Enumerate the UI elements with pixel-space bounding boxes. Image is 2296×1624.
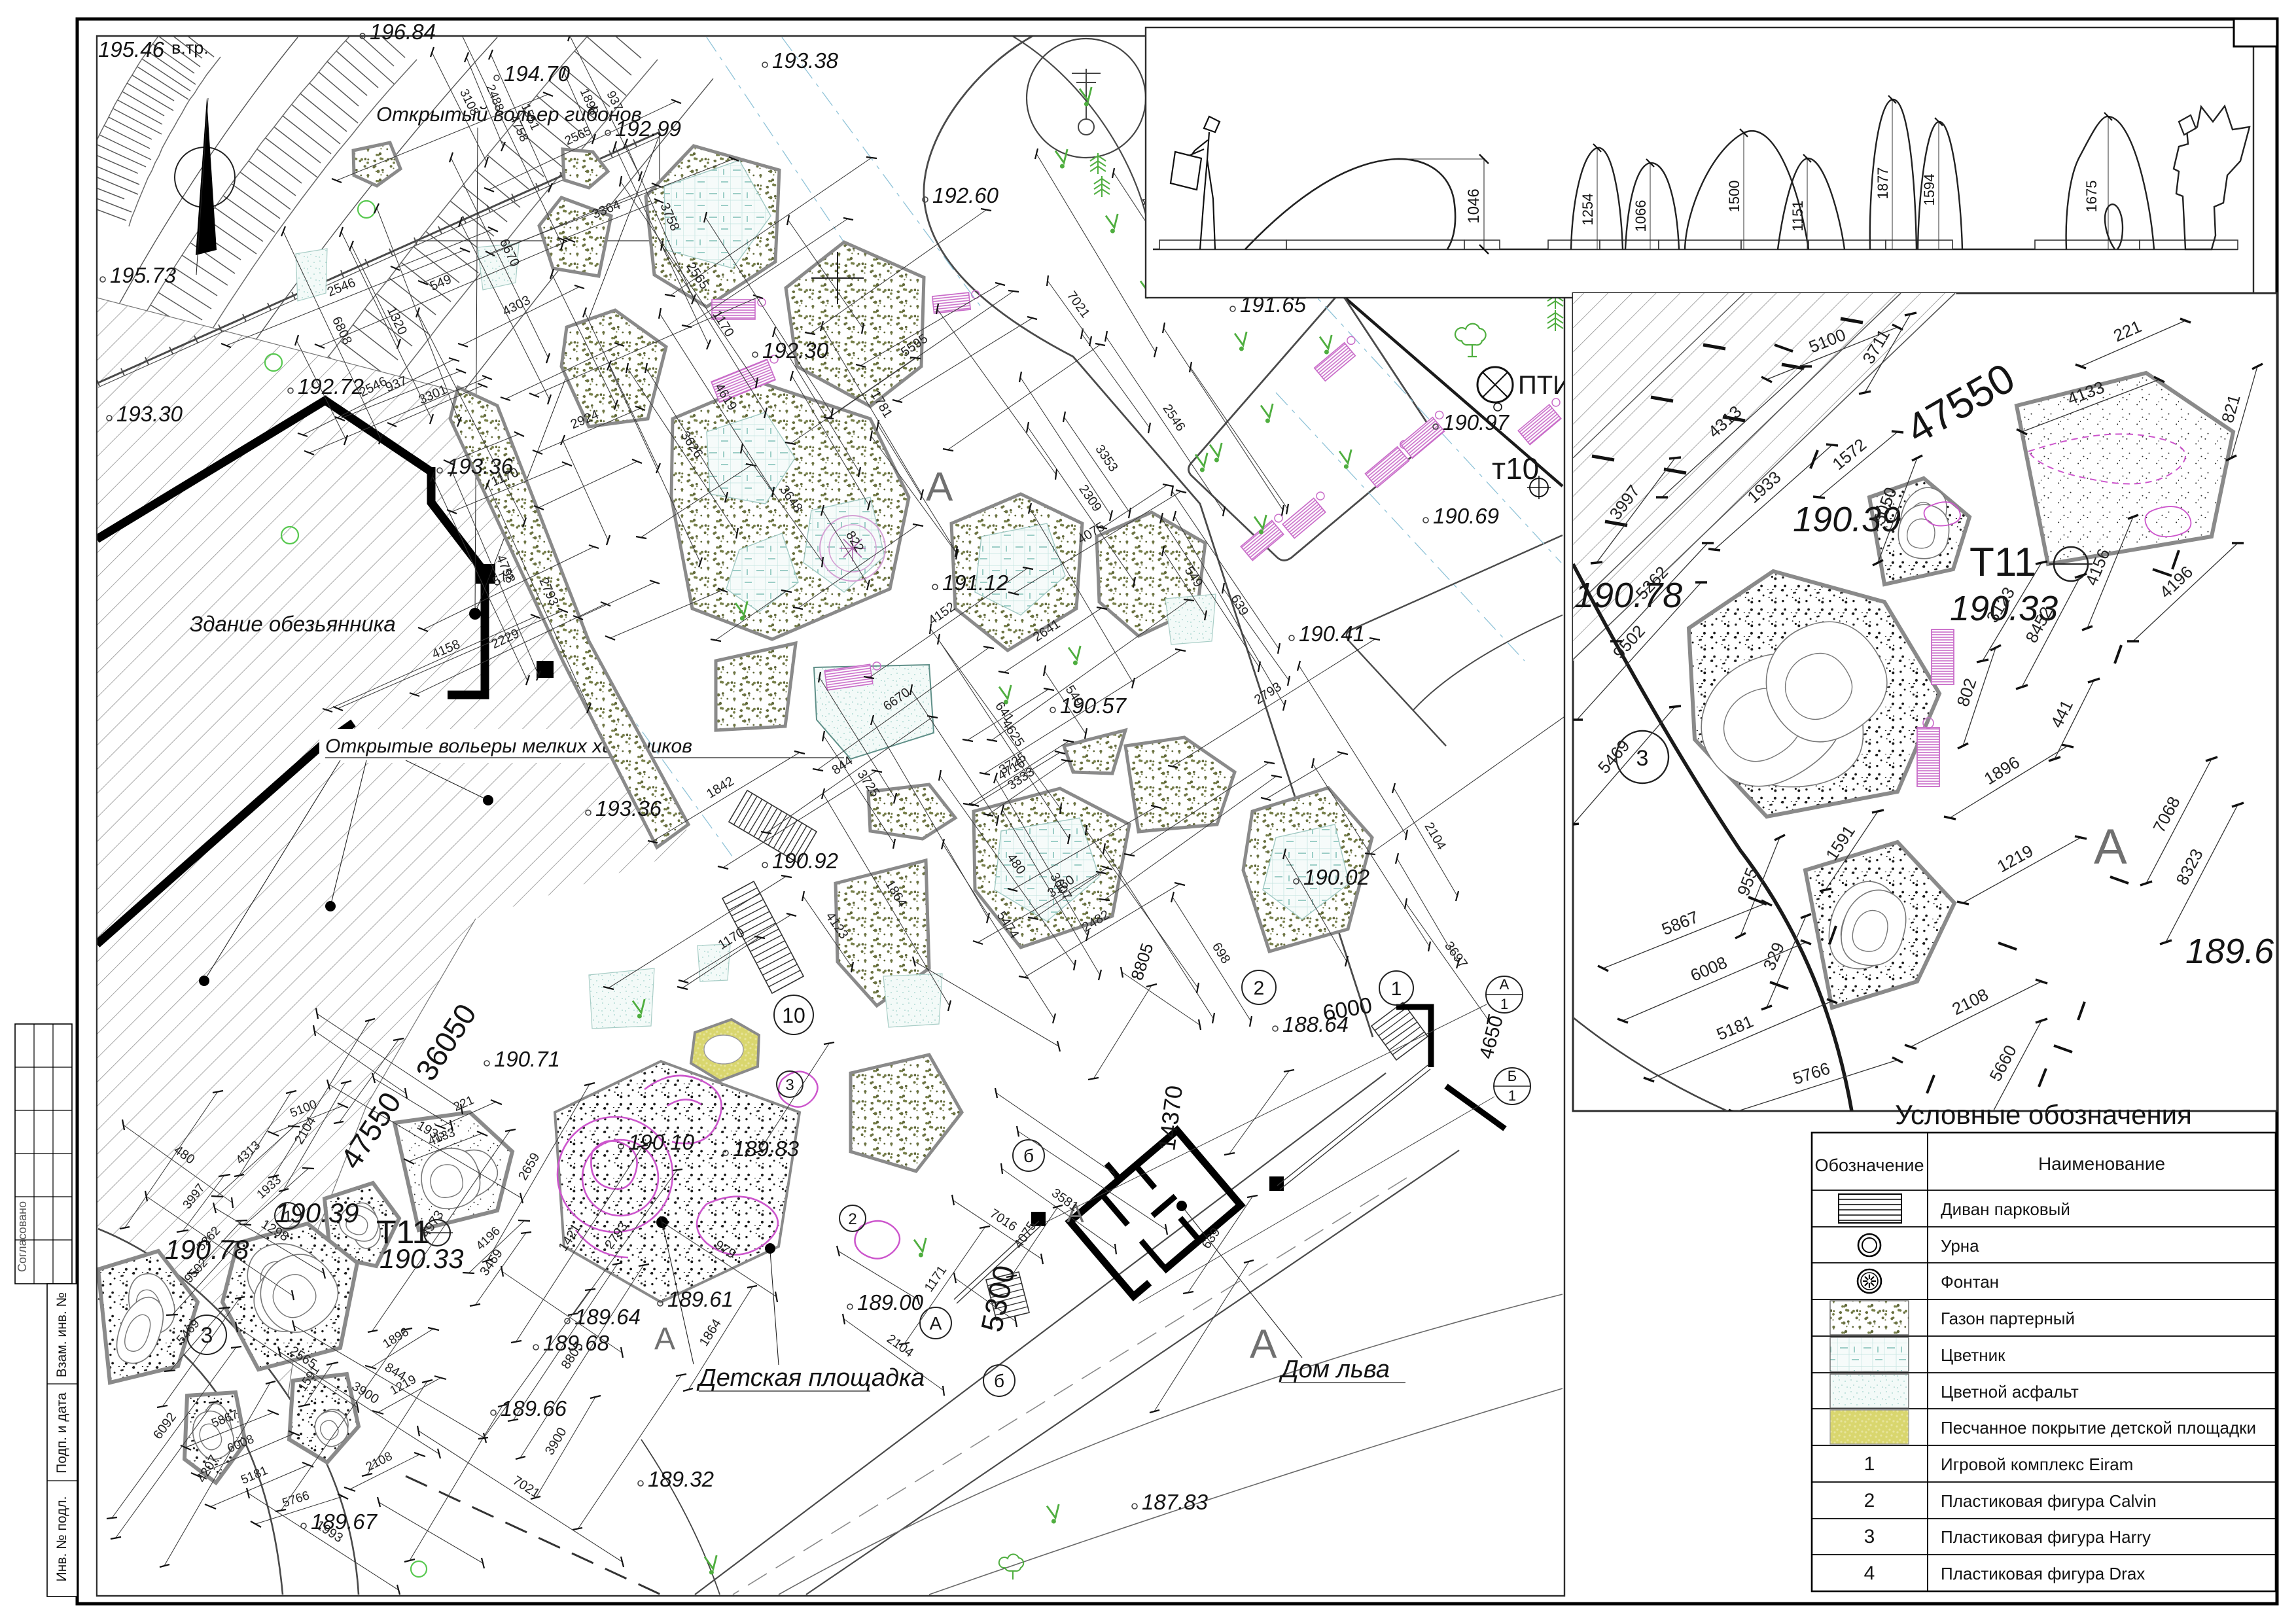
- svg-text:194.70: 194.70: [504, 62, 571, 86]
- svg-text:190.71: 190.71: [494, 1047, 560, 1071]
- svg-text:Инв. № подл.: Инв. № подл.: [54, 1496, 69, 1582]
- svg-text:1594: 1594: [1921, 174, 1937, 206]
- svg-text:193.30: 193.30: [116, 402, 183, 426]
- svg-text:Пластиковая фигура Harry: Пластиковая фигура Harry: [1941, 1527, 2151, 1547]
- svg-text:195.46: 195.46: [98, 37, 165, 62]
- svg-text:2: 2: [1254, 978, 1265, 999]
- svg-text:189.64: 189.64: [574, 1305, 641, 1329]
- svg-text:189.00: 189.00: [857, 1290, 924, 1315]
- svg-text:189.32: 189.32: [648, 1467, 714, 1491]
- svg-text:А: А: [2094, 819, 2127, 875]
- svg-text:Игровой комплекс Eiram: Игровой комплекс Eiram: [1941, 1455, 2133, 1474]
- svg-text:Взам. инв. №: Взам. инв. №: [54, 1292, 69, 1377]
- svg-text:1: 1: [1391, 978, 1402, 1000]
- svg-text:Условные обозначения: Условные обозначения: [1895, 1099, 2192, 1130]
- svg-text:Диван парковый: Диван парковый: [1941, 1199, 2070, 1219]
- svg-text:190.97: 190.97: [1443, 410, 1510, 434]
- svg-text:190.92: 190.92: [772, 849, 838, 873]
- svg-text:2: 2: [1864, 1490, 1875, 1511]
- svg-text:187.83: 187.83: [1142, 1490, 1209, 1514]
- svg-text:190.41: 190.41: [1299, 622, 1365, 646]
- svg-text:193.36: 193.36: [595, 796, 662, 821]
- svg-text:1151: 1151: [1790, 200, 1806, 231]
- svg-text:Подп. и дата: Подп. и дата: [54, 1392, 69, 1474]
- svg-text:Обозначение: Обозначение: [1815, 1156, 1924, 1175]
- svg-text:190.39: 190.39: [275, 1197, 359, 1228]
- svg-text:Песчанное покрытие детской пло: Песчанное покрытие детской площадки: [1941, 1418, 2256, 1438]
- svg-text:190.10: 190.10: [628, 1130, 695, 1154]
- svg-text:192.60: 192.60: [932, 183, 999, 207]
- svg-text:т10: т10: [1492, 451, 1539, 485]
- svg-text:196.84: 196.84: [370, 20, 436, 44]
- svg-text:191.12: 191.12: [942, 571, 1008, 595]
- svg-text:1877: 1877: [1875, 168, 1891, 200]
- svg-text:Цветной асфальт: Цветной асфальт: [1941, 1382, 2079, 1402]
- svg-text:4: 4: [1864, 1562, 1875, 1584]
- svg-text:1046: 1046: [1465, 188, 1483, 223]
- svg-text:А: А: [930, 1313, 942, 1333]
- svg-text:Согласовано: Согласовано: [16, 1201, 29, 1272]
- svg-text:189.61: 189.61: [667, 1287, 733, 1311]
- svg-text:1: 1: [1500, 996, 1508, 1012]
- svg-text:1500: 1500: [1726, 181, 1742, 213]
- svg-text:190.69: 190.69: [1433, 504, 1499, 528]
- svg-text:1: 1: [1508, 1087, 1516, 1104]
- svg-text:190.33: 190.33: [380, 1243, 463, 1274]
- svg-text:3: 3: [785, 1076, 794, 1094]
- svg-text:1: 1: [1864, 1453, 1875, 1475]
- svg-text:Фонтан: Фонтан: [1941, 1272, 1999, 1292]
- svg-text:190.78: 190.78: [165, 1234, 249, 1265]
- svg-text:1254: 1254: [1580, 194, 1596, 226]
- svg-text:190.02: 190.02: [1303, 865, 1369, 889]
- svg-text:192.72: 192.72: [298, 374, 364, 398]
- svg-text:Здание обезьянника: Здание обезьянника: [190, 612, 396, 636]
- svg-text:Пластиковая фигура Drax: Пластиковая фигура Drax: [1941, 1564, 2145, 1583]
- svg-text:в.тр.: в.тр.: [171, 38, 209, 58]
- svg-text:Пластиковая фигура Calvin: Пластиковая фигура Calvin: [1941, 1491, 2157, 1511]
- svg-text:Детская площадка: Детская площадка: [696, 1364, 925, 1392]
- svg-text:б: б: [1023, 1146, 1034, 1166]
- svg-text:б: б: [994, 1371, 1004, 1391]
- svg-text:1066: 1066: [1633, 200, 1649, 232]
- svg-text:3: 3: [1864, 1526, 1875, 1547]
- svg-text:1675: 1675: [2083, 181, 2100, 213]
- svg-text:2: 2: [848, 1210, 857, 1228]
- svg-text:192.99: 192.99: [615, 116, 681, 141]
- svg-text:Газон партерный: Газон партерный: [1941, 1309, 2075, 1328]
- svg-text:Урна: Урна: [1941, 1236, 1979, 1256]
- svg-text:Б: Б: [1508, 1068, 1517, 1084]
- svg-text:189.6: 189.6: [2185, 932, 2274, 971]
- svg-text:Наименование: Наименование: [2038, 1154, 2165, 1174]
- svg-text:Т11: Т11: [1969, 540, 2036, 585]
- svg-text:10: 10: [782, 1004, 805, 1027]
- svg-text:193.38: 193.38: [772, 48, 839, 73]
- svg-text:Цветник: Цветник: [1941, 1345, 2005, 1365]
- svg-text:А: А: [1500, 976, 1510, 993]
- svg-text:Дом льва: Дом льва: [1279, 1356, 1390, 1383]
- svg-text:192.30: 192.30: [762, 338, 829, 362]
- svg-text:ПТИ: ПТИ: [1518, 371, 1572, 400]
- svg-text:А: А: [1250, 1322, 1277, 1367]
- svg-text:А: А: [654, 1322, 675, 1356]
- svg-text:А: А: [926, 465, 953, 510]
- svg-text:195.73: 195.73: [110, 263, 177, 287]
